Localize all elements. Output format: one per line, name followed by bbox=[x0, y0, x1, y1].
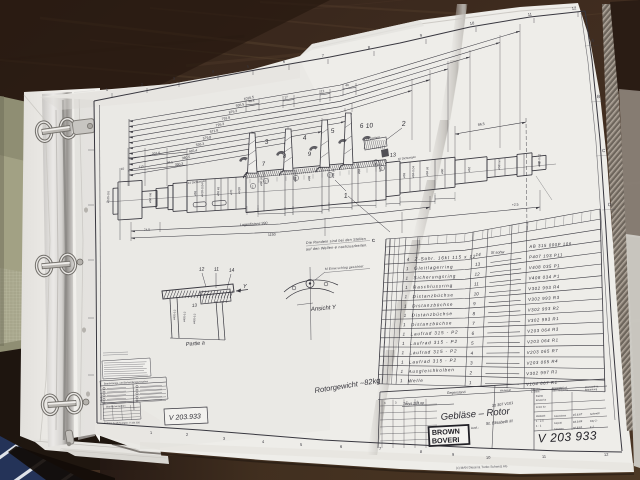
svg-text:1 : 1: 1 : 1 bbox=[536, 424, 542, 428]
svg-text:B: B bbox=[597, 94, 600, 99]
svg-text:ø420-0.2: ø420-0.2 bbox=[192, 313, 197, 324]
svg-text:Welle: Welle bbox=[408, 378, 424, 384]
svg-text:Y: Y bbox=[243, 284, 247, 290]
svg-text:St sohw: St sohw bbox=[491, 250, 505, 255]
svg-text:10: 10 bbox=[474, 291, 480, 296]
svg-text:ø80 s6: ø80 s6 bbox=[259, 176, 263, 186]
svg-text:ø420-0.2: ø420-0.2 bbox=[172, 309, 177, 320]
svg-text:Konto für: Konto für bbox=[536, 405, 546, 409]
svg-text:ø418: ø418 bbox=[237, 187, 241, 194]
svg-text:a: a bbox=[375, 162, 377, 166]
svg-text:ø420-0.2: ø420-0.2 bbox=[182, 311, 187, 322]
svg-text:ø84: ø84 bbox=[357, 168, 361, 174]
svg-text:ø418-0.04: ø418-0.04 bbox=[200, 183, 204, 197]
svg-text:Ersatz für: Ersatz für bbox=[536, 398, 547, 402]
svg-text:ø48-0.02: ø48-0.02 bbox=[537, 154, 541, 166]
svg-text:Keine: Keine bbox=[536, 394, 544, 398]
svg-text:Werkstoff: Werkstoff bbox=[500, 388, 511, 393]
svg-text:BOVERI: BOVERI bbox=[432, 435, 460, 445]
svg-text:ø65 k6: ø65 k6 bbox=[216, 186, 220, 196]
svg-text:115: 115 bbox=[139, 164, 145, 169]
svg-text:1150: 1150 bbox=[268, 232, 276, 237]
svg-text:Ausf.:: Ausf.: bbox=[471, 426, 479, 430]
svg-text:13: 13 bbox=[475, 262, 481, 267]
svg-text:+2.5: +2.5 bbox=[512, 202, 519, 207]
svg-text:Maßstab: Maßstab bbox=[536, 414, 546, 418]
svg-text:74.5: 74.5 bbox=[144, 228, 151, 232]
svg-text:12: 12 bbox=[199, 267, 205, 273]
svg-text:ø58/mm: ø58/mm bbox=[497, 158, 501, 170]
svg-text:ø65: ø65 bbox=[193, 190, 197, 196]
svg-text:ø69: ø69 bbox=[402, 172, 406, 178]
svg-text:12: 12 bbox=[475, 272, 481, 277]
svg-text:Day 2-: Day 2- bbox=[590, 418, 598, 423]
svg-text:14: 14 bbox=[476, 252, 482, 257]
svg-text:86.5: 86.5 bbox=[167, 160, 174, 165]
svg-text:13: 13 bbox=[192, 303, 198, 308]
svg-text:ø60 m6: ø60 m6 bbox=[148, 192, 152, 203]
svg-text:ø84-0.04: ø84-0.04 bbox=[411, 166, 415, 178]
svg-text:10: 10 bbox=[365, 122, 373, 130]
svg-text:ø105-0.6: ø105-0.6 bbox=[106, 191, 110, 203]
svg-text:Geprüft: Geprüft bbox=[554, 422, 562, 425]
svg-text:ø88: ø88 bbox=[307, 175, 311, 181]
svg-text:ø84 s6: ø84 s6 bbox=[425, 166, 429, 176]
svg-text:11: 11 bbox=[214, 267, 220, 273]
svg-text:Frühere Ausführungen: V 104 5: Frühere Ausführungen: V 104 550 bbox=[104, 421, 141, 425]
svg-text:1 : 2.5: 1 : 2.5 bbox=[536, 419, 544, 423]
svg-text:ø62: ø62 bbox=[467, 166, 471, 172]
svg-text:14: 14 bbox=[229, 268, 235, 274]
svg-text:ø70: ø70 bbox=[229, 189, 233, 195]
svg-text:11: 11 bbox=[474, 281, 479, 286]
svg-text:2: 2 bbox=[400, 121, 406, 128]
svg-text:ø80: ø80 bbox=[440, 168, 444, 174]
